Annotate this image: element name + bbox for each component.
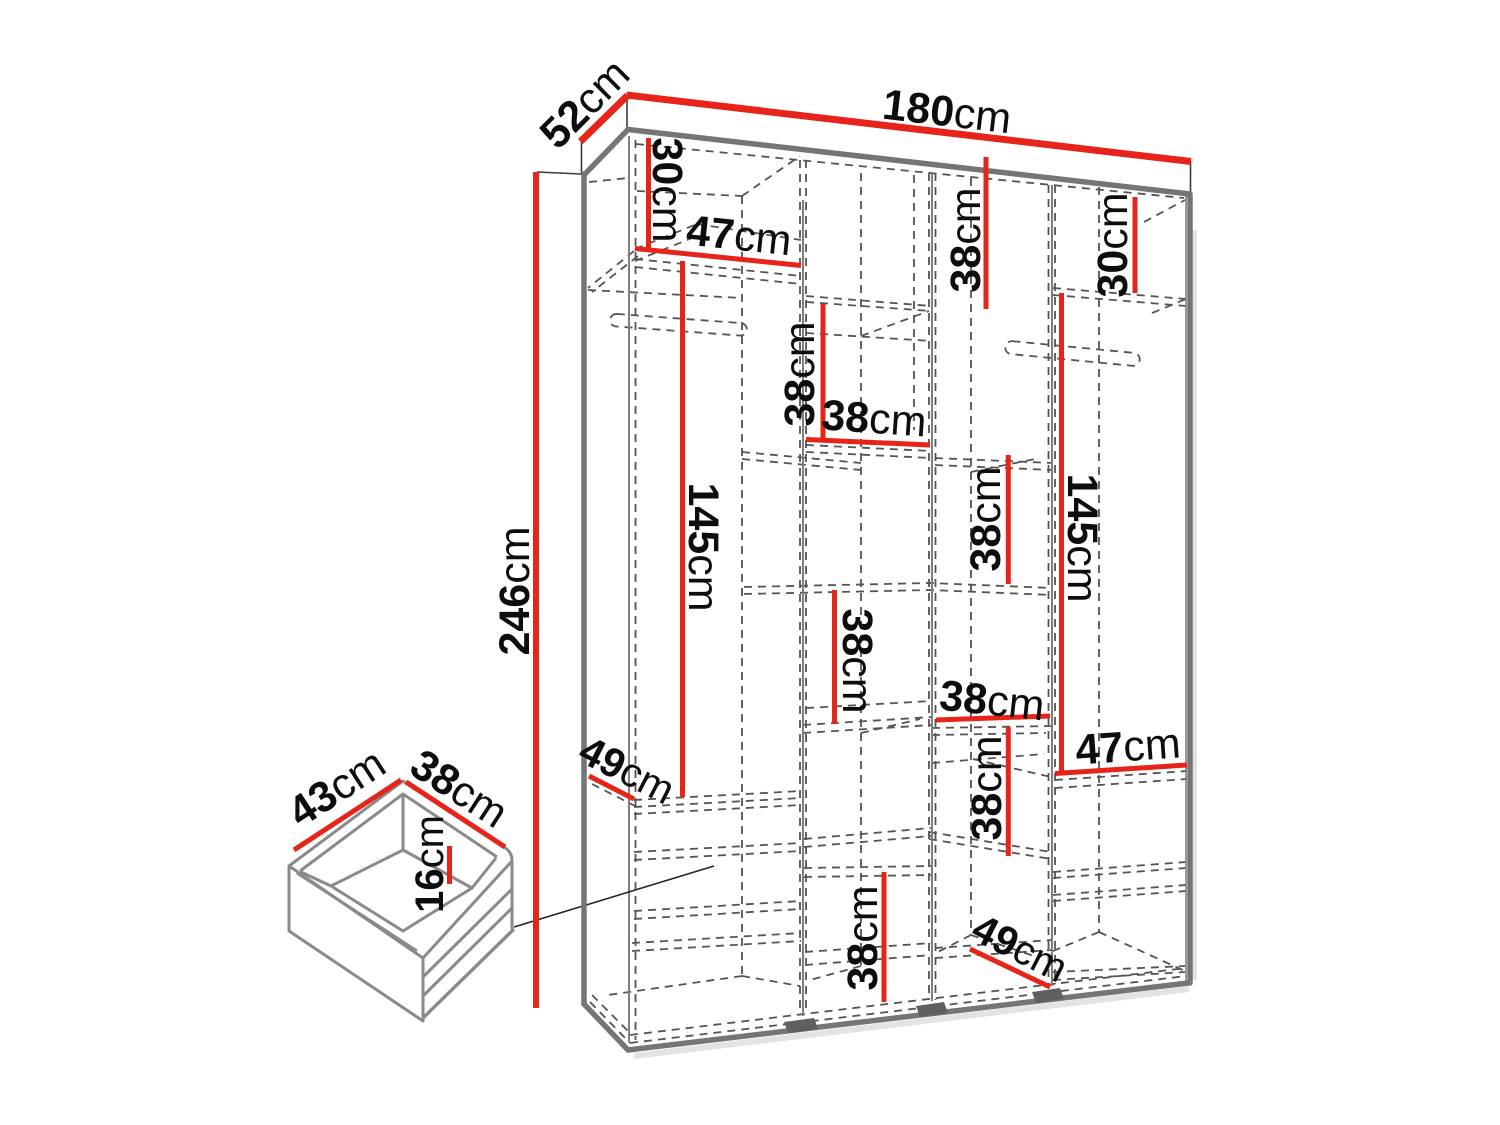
svg-text:145cm: 145cm: [1058, 473, 1106, 602]
svg-text:30cm: 30cm: [1089, 192, 1137, 297]
svg-text:38cm: 38cm: [839, 885, 887, 990]
svg-text:38cm: 38cm: [820, 391, 928, 446]
svg-text:38cm: 38cm: [942, 187, 990, 292]
svg-text:16cm: 16cm: [408, 815, 452, 913]
svg-text:38cm: 38cm: [962, 466, 1010, 571]
svg-text:38cm: 38cm: [963, 735, 1011, 840]
svg-text:38cm: 38cm: [776, 321, 824, 426]
svg-text:38cm: 38cm: [833, 608, 881, 713]
svg-text:30cm: 30cm: [643, 137, 691, 242]
svg-text:246cm: 246cm: [491, 526, 539, 655]
svg-text:47cm: 47cm: [1074, 719, 1182, 774]
svg-text:145cm: 145cm: [679, 482, 727, 611]
